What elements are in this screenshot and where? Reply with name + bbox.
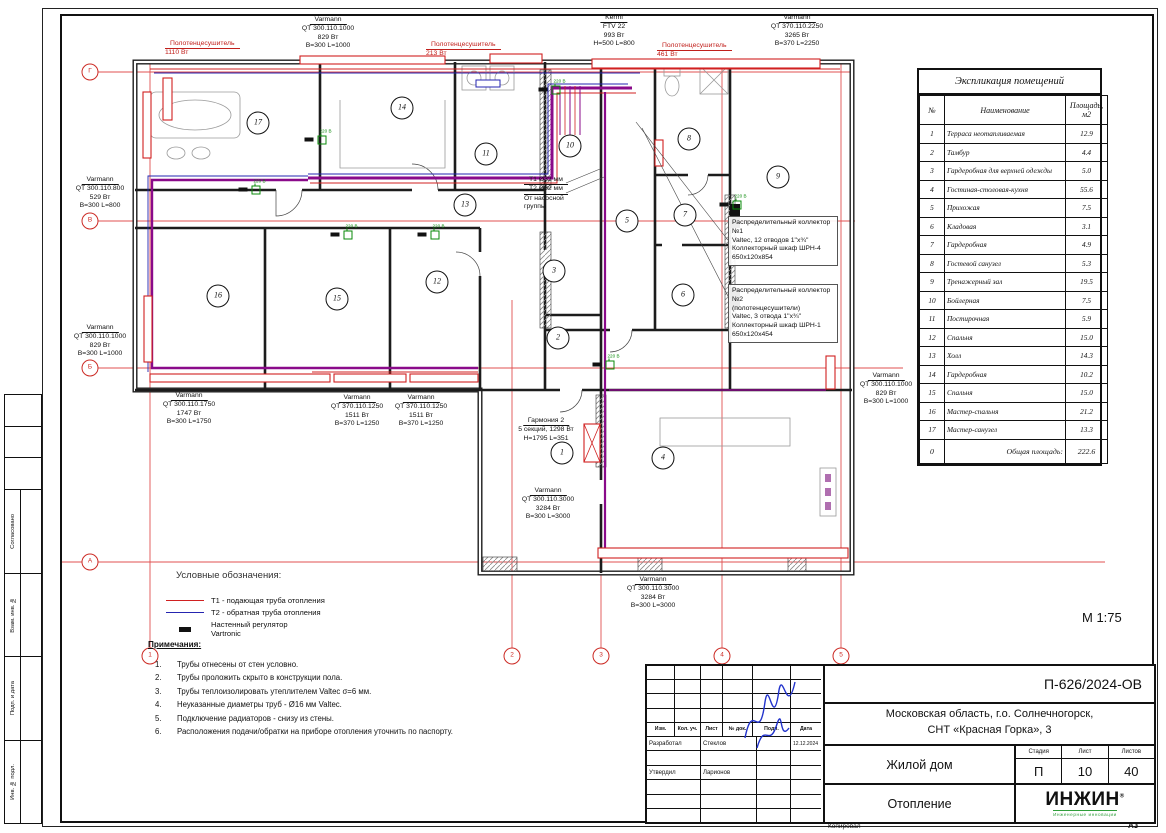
- explication-table: Экспликация помещений № Наименование Пло…: [917, 68, 1102, 466]
- explication-row: 2Тамбур4.4: [920, 143, 1108, 162]
- object-name: Жилой дом: [825, 746, 1016, 783]
- explication-row: 9Тренажерный зал19.5: [920, 273, 1108, 292]
- project-address: Московская область, г.о. Солнечногорск, …: [825, 704, 1154, 746]
- explication-row: 16Мастер-спальня21.2: [920, 402, 1108, 421]
- explication-header-area: Площадь, м2: [1066, 96, 1108, 125]
- approved-name: Ларионов: [701, 766, 757, 781]
- legend-title: Условные обозначения:: [176, 570, 281, 581]
- note-item: 4.Неуказанные диаметры труб - Ø16 мм Val…: [155, 700, 453, 709]
- explication-row: 14Гардеробная10.2: [920, 365, 1108, 384]
- explication-total-row: 0 Общая площадь: 222.6: [920, 439, 1108, 463]
- sheets-value: 40: [1109, 759, 1154, 783]
- scale-label: М 1:75: [1082, 610, 1122, 625]
- legend-item: Т2 - обратная труба отопления: [166, 608, 325, 617]
- explication-header-name: Наименование: [945, 96, 1066, 125]
- shaft-marks: [825, 474, 831, 510]
- t1-swatch: [166, 600, 204, 601]
- company-logo: ИНЖИН® Инженерные инновации: [1016, 785, 1154, 822]
- explication-row: 12Спальня15.0: [920, 328, 1108, 347]
- roles-grid: Разработал Стеклов 12.12.2024 Утвердил Л…: [647, 737, 823, 823]
- walls: [135, 62, 852, 573]
- explication-row: 1Терраса неотапливаемая12.9: [920, 125, 1108, 144]
- stage-table: Стадия Лист Листов П 10 40: [1016, 746, 1154, 783]
- collectors: [566, 122, 740, 310]
- explication-row: 3Гардеробная для верхней одежды5.0: [920, 162, 1108, 181]
- legend-items: Т1 - подающая труба отопленияТ2 - обратн…: [166, 596, 325, 642]
- explication-row: 6Кладовая3.1: [920, 217, 1108, 236]
- explication-title: Экспликация помещений: [919, 70, 1100, 95]
- explication-row: 5Прихожая7.5: [920, 199, 1108, 218]
- sign-date: 12.12.2024: [791, 737, 821, 752]
- title-block: Изм. Кол. уч. Лист № док. Подп. Дата Раз…: [645, 664, 1156, 824]
- approved-label: Утвердил: [647, 766, 701, 781]
- format-label: А3: [1128, 821, 1138, 830]
- radiators: [143, 54, 848, 558]
- explication-rows: 1Терраса неотапливаемая12.92Тамбур4.43Га…: [920, 125, 1108, 440]
- sheet-name: Отопление: [825, 785, 1016, 822]
- note-item: 2.Трубы проложить скрыто в конструкции п…: [155, 673, 453, 682]
- notes-list: 1.Трубы отнесены от стен условно.2.Трубы…: [155, 660, 453, 740]
- sheet-value: 10: [1062, 759, 1108, 783]
- project-code: П-626/2024-ОВ: [825, 666, 1154, 704]
- note-item: 1.Трубы отнесены от стен условно.: [155, 660, 453, 669]
- rg-swatch: [166, 627, 204, 632]
- title-block-revision-grid: Изм. Кол. уч. Лист № док. Подп. Дата Раз…: [647, 666, 825, 822]
- explication-row: 11Постирочная5.9: [920, 310, 1108, 329]
- explication-row: 4Гостиная-столовая-кухня55.6: [920, 180, 1108, 199]
- explication-row: 15Спальня15.0: [920, 384, 1108, 403]
- drawing-sheet: { "sheet": { "scale_label": "М 1:75", "c…: [0, 0, 1166, 833]
- stage-value: П: [1016, 759, 1062, 783]
- hatched-walls: [483, 70, 806, 571]
- explication-header-num: №: [920, 96, 945, 125]
- copied-by-label: Копировал: [828, 823, 861, 830]
- legend-item: Настенный регуляторVartronic: [166, 620, 325, 638]
- explication-row: 10Бойлерная7.5: [920, 291, 1108, 310]
- title-block-main: П-626/2024-ОВ Московская область, г.о. С…: [825, 666, 1154, 822]
- developed-name: Стеклов: [701, 737, 757, 752]
- towel-rail: [476, 80, 500, 87]
- note-item: 6.Расположения подачи/обратки на приборе…: [155, 727, 453, 736]
- explication-row: 8Гостевой санузел5.3: [920, 254, 1108, 273]
- explication-row: 7Гардеробная4.9: [920, 236, 1108, 255]
- explication-row: 13Холл14.3: [920, 347, 1108, 366]
- explication-row: 17Мастер-санузел13.3: [920, 421, 1108, 440]
- note-item: 5.Подключение радиаторов - снизу из стен…: [155, 714, 453, 723]
- pipes: [148, 69, 840, 554]
- revision-empty-rows: Изм. Кол. уч. Лист № док. Подп. Дата: [647, 666, 823, 737]
- t2-swatch: [166, 612, 204, 613]
- note-item: 3.Трубы теплоизолировать утеплителем Val…: [155, 687, 453, 696]
- developed-label: Разработал: [647, 737, 701, 752]
- notes-title: Примечания:: [148, 640, 201, 649]
- legend-item: Т1 - подающая труба отопления: [166, 596, 325, 605]
